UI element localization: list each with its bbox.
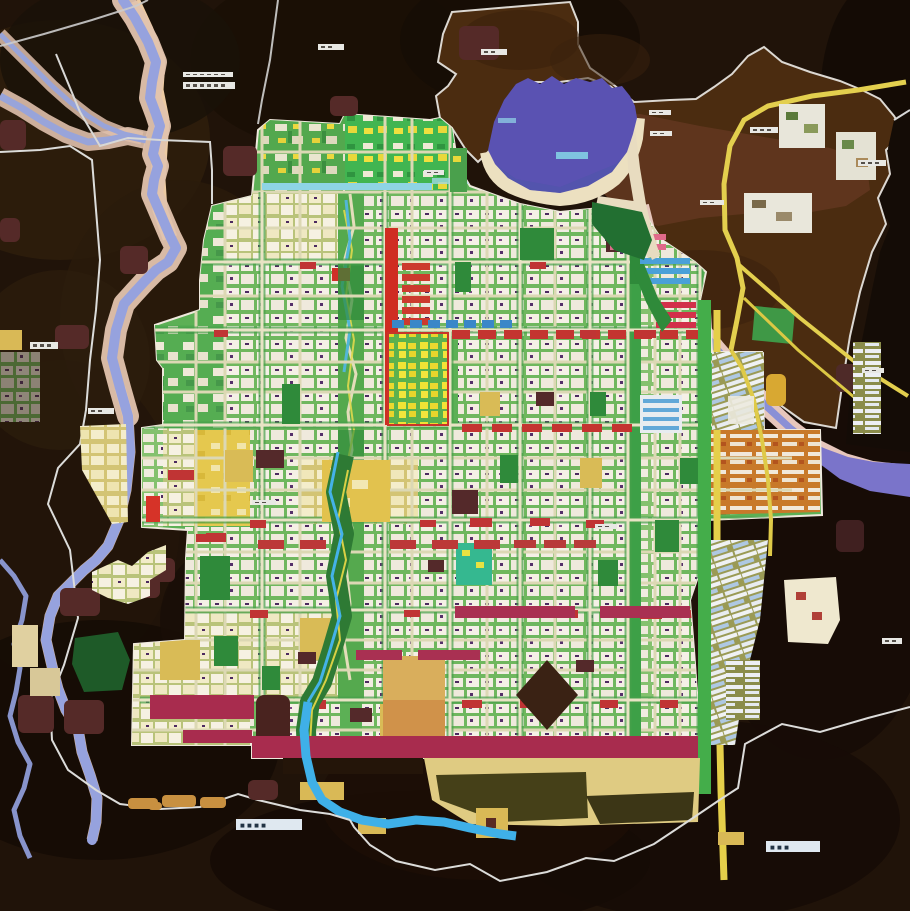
svg-text:■ ■ ■: ■ ■ ■ xyxy=(770,843,789,852)
svg-text:■ ■ ■ ■: ■ ■ ■ ■ xyxy=(240,821,266,830)
